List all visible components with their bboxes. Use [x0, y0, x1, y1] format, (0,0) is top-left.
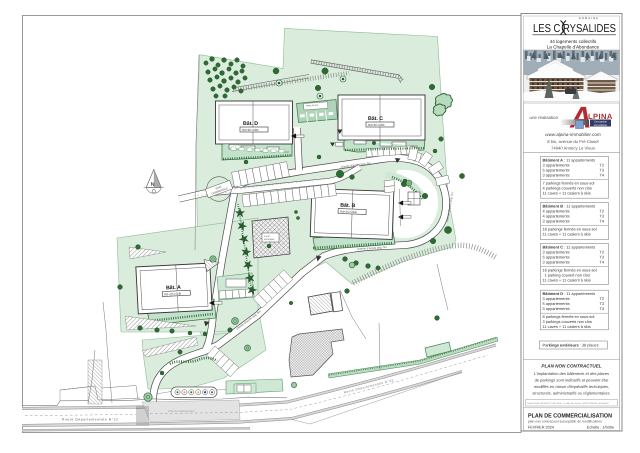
svg-text:Rd+2C+2èB: Rd+2C+2èB — [242, 128, 259, 132]
svg-text:3 appartements: 3 appartements — [543, 173, 570, 178]
svg-text:3 appartements: 3 appartements — [543, 259, 570, 264]
svg-text:Bât. A: Bât. A — [166, 285, 181, 292]
svg-text:Zone de stationnement: Zone de stationnement — [168, 410, 195, 413]
svg-text:FEVRIER 2024: FEVRIER 2024 — [528, 425, 554, 429]
svg-text:Rd+2C+2èB: Rd+2C+2èB — [340, 210, 357, 215]
svg-text:L'implantation des bâtiments e: L'implantation des bâtiments et des plac… — [534, 371, 609, 376]
svg-text:74940 Annecy Le Vieux: 74940 Annecy Le Vieux — [551, 146, 596, 151]
svg-text:11 caves + 11 casiers à skis: 11 caves + 11 casiers à skis — [543, 191, 591, 196]
svg-text:3 appartements: 3 appartements — [543, 306, 570, 311]
svg-text:DOMAINE: DOMAINE — [579, 17, 600, 20]
svg-text:44 logements collectifs: 44 logements collectifs — [550, 39, 597, 44]
svg-text:LES C RYSALIDES: LES C RYSALIDES — [533, 23, 616, 35]
svg-text:La Chapelle d'Abondance: La Chapelle d'Abondance — [547, 45, 600, 50]
svg-text:11 caves + 11 casiers à skis: 11 caves + 11 casiers à skis — [543, 324, 591, 329]
svg-text:Bât. B: Bât. B — [340, 203, 355, 210]
svg-text:N: N — [151, 182, 155, 188]
svg-text:11 caves + 11 casiers à skis: 11 caves + 11 casiers à skis — [543, 277, 591, 282]
svg-text:une réalisation: une réalisation — [530, 115, 559, 120]
svg-text:PLAN NON CONTRACTUEL: PLAN NON CONTRACTUEL — [541, 364, 601, 369]
svg-text:Parkings extérieurs : 38 place: Parkings extérieurs : 38 places — [543, 343, 599, 348]
svg-text:Route Départementale N°22: Route Départementale N°22 — [62, 417, 118, 421]
svg-text:modifiés en raison d'impératif: modifiés en raison d'impératifs techniqu… — [534, 384, 609, 389]
svg-text:plan non contractuel susceptib: plan non contractuel susceptible de modi… — [528, 419, 602, 423]
svg-text:Bât. D: Bât. D — [243, 121, 258, 127]
svg-text:11 caves + 11 casiers à skis: 11 caves + 11 casiers à skis — [543, 232, 591, 237]
svg-text:technique: technique — [264, 238, 275, 241]
svg-text:Rd+2C+2èB: Rd+2C+2èB — [368, 123, 385, 127]
svg-text:Bât. C: Bât. C — [368, 116, 383, 122]
svg-text:8 bis, avenue du Pré Closet: 8 bis, avenue du Pré Closet — [547, 139, 599, 144]
svg-text:www.alpina-immobilier.com: www.alpina-immobilier.com — [545, 132, 601, 137]
svg-text:immobilière: immobilière — [594, 124, 608, 127]
svg-text:de parkings sont indicatifs et: de parkings sont indicatifs et peuvent ê… — [535, 378, 610, 383]
svg-text:Echelle : 1/500e: Echelle : 1/500e — [587, 425, 614, 429]
svg-text:structurels, administratifs ou: structurels, administratifs ou réglement… — [532, 391, 610, 396]
svg-text:MAB DOMO ARCHITECTURE SARL - 8: MAB DOMO ARCHITECTURE SARL - 8, allée de… — [528, 402, 610, 405]
svg-text:3 appartements: 3 appartements — [543, 219, 570, 224]
